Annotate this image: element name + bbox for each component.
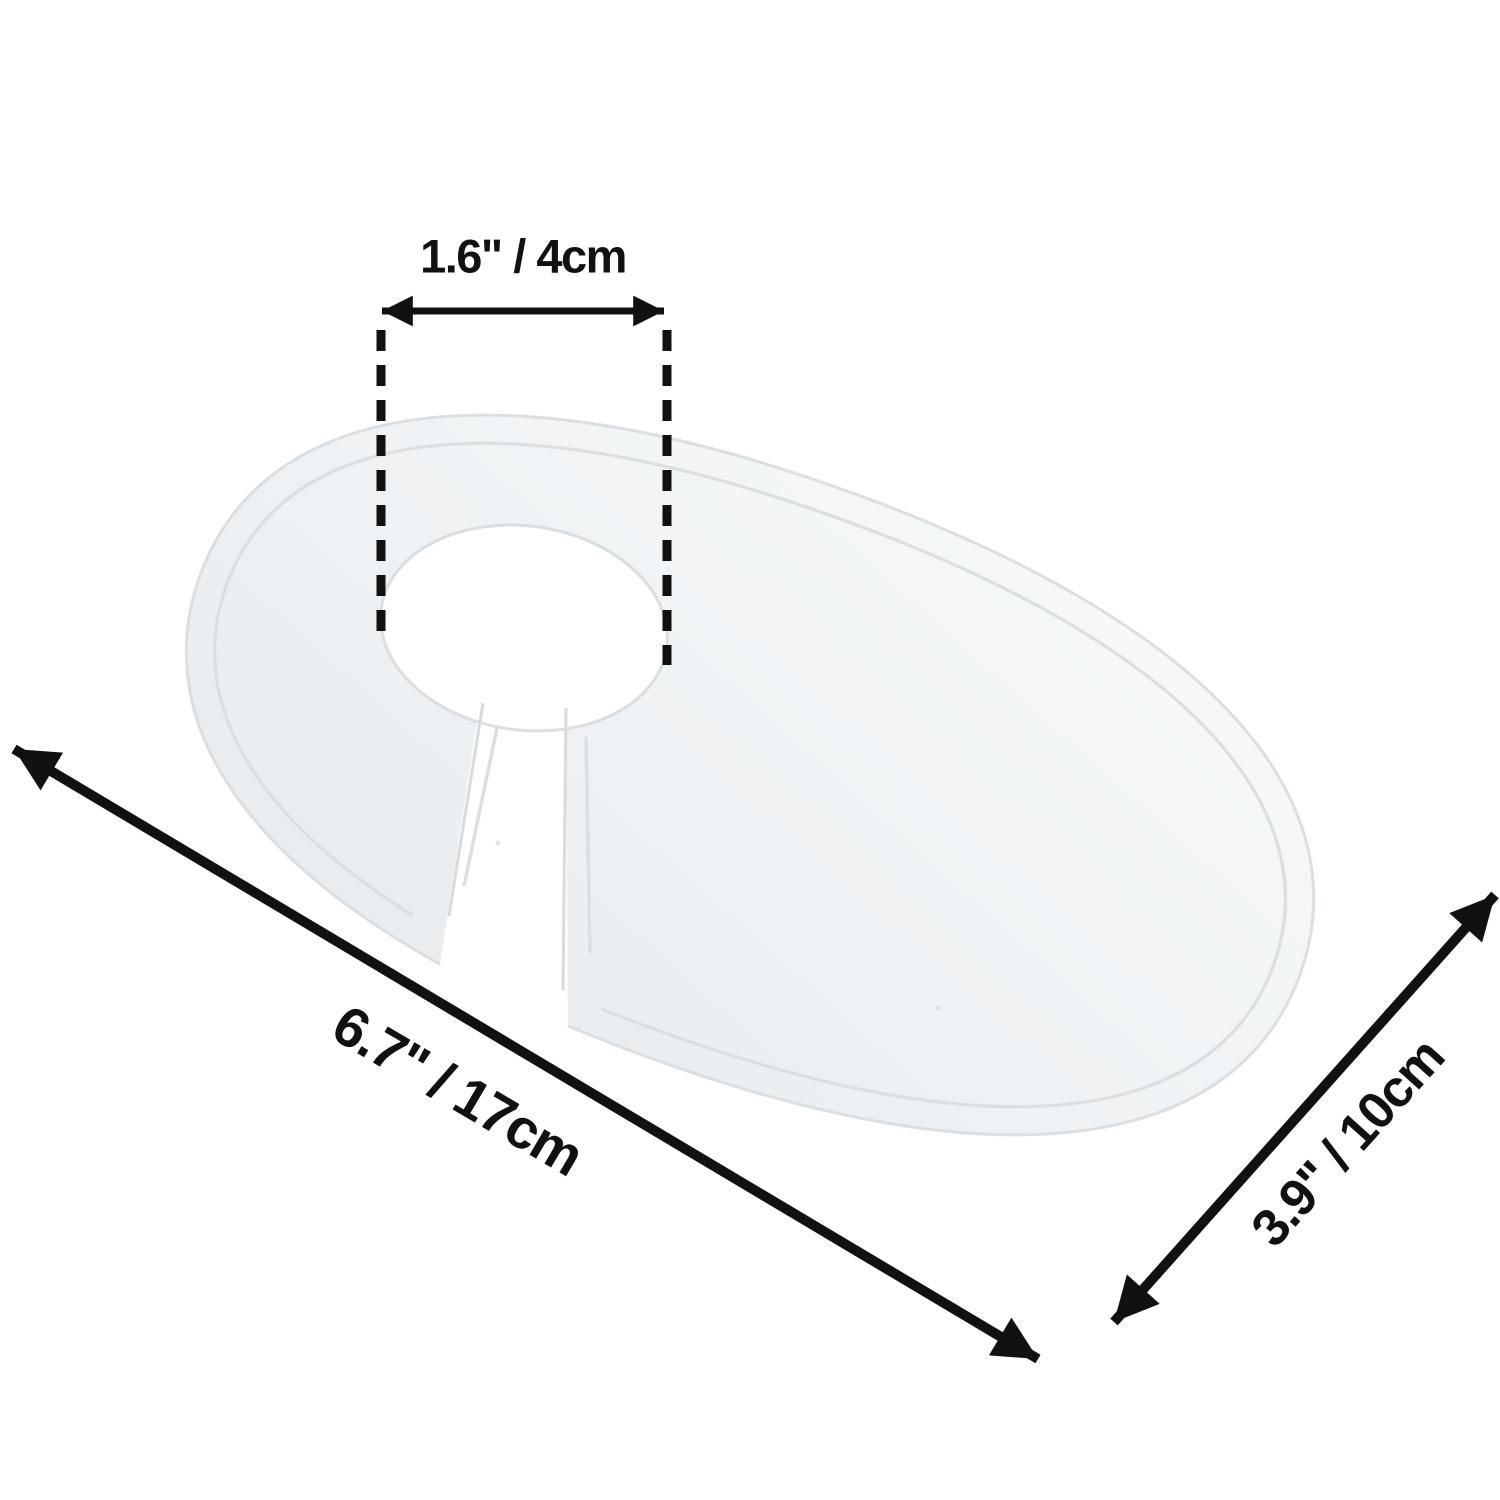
plate-speckle — [496, 841, 501, 846]
hole-diameter-label: 1.6" / 4cm — [420, 229, 626, 284]
diagram-canvas — [0, 0, 1500, 1500]
plate-shape — [98, 293, 1403, 1257]
divider-plate — [98, 293, 1403, 1257]
product-dimension-diagram: 1.6" / 4cm 6.7" / 17cm 3.9" / 10cm — [0, 0, 1500, 1500]
plate-speckle — [936, 1006, 941, 1011]
